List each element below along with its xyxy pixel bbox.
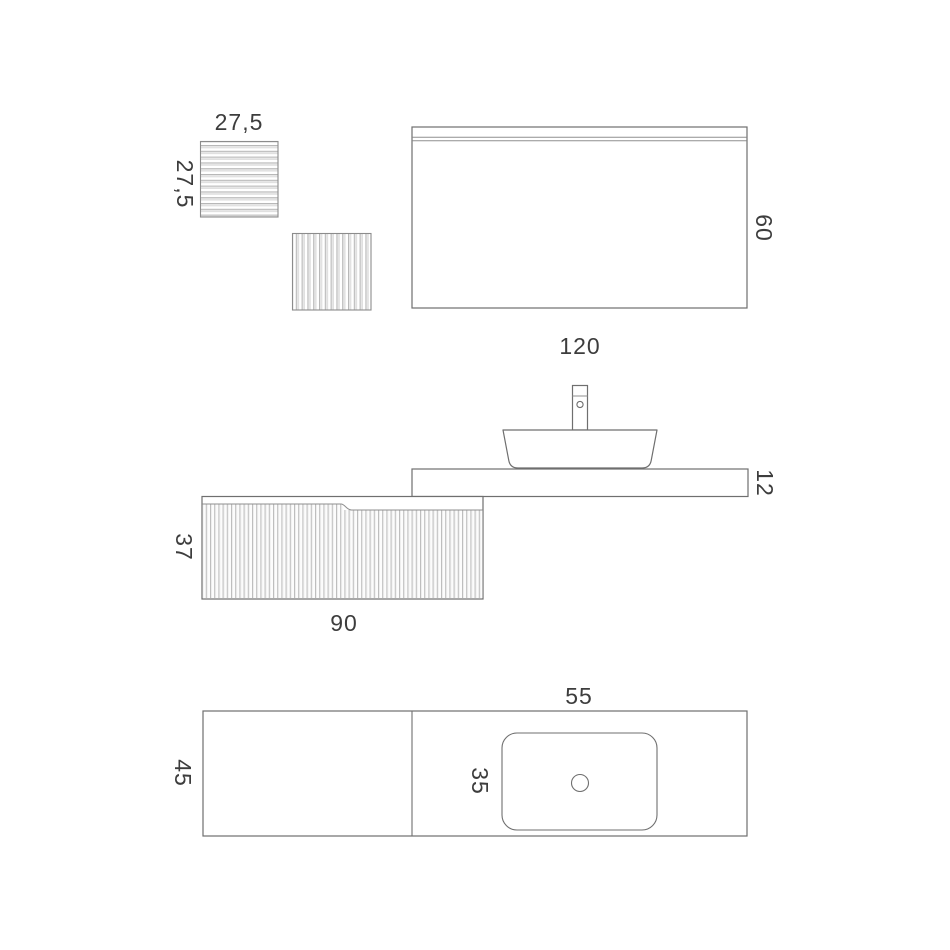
technical-drawing-page: 27,5 27,5 60 120 12 37 — [0, 0, 950, 950]
countertop-side — [412, 469, 748, 497]
dim-panel-width: 27,5 — [215, 109, 264, 135]
panel-sample-vertical-ribs — [293, 234, 372, 311]
cabinet-ribs-left — [203, 504, 343, 598]
panel-sample-horizontal-ribs — [201, 142, 279, 218]
cabinet-ribs-right — [343, 510, 483, 598]
view-countertop-plan: 55 35 45 — [170, 683, 747, 836]
dim-countertop-depth: 45 — [170, 759, 196, 787]
dim-mirror-height: 60 — [751, 214, 777, 242]
dim-countertop-thickness: 12 — [752, 469, 778, 497]
view-mirror-front: 60 120 — [412, 127, 777, 359]
view-vanity-elevation: 12 37 90 — [171, 386, 778, 637]
bathroom-furniture-dimension-drawing: 27,5 27,5 60 120 12 37 — [0, 0, 950, 950]
dim-cabinet-width: 90 — [330, 610, 358, 636]
dim-basin-depth: 35 — [467, 767, 493, 795]
dim-panel-height: 27,5 — [172, 160, 198, 209]
basin-side-profile — [503, 430, 657, 468]
basin-cutout-outline — [502, 733, 657, 830]
view-panel-samples: 27,5 27,5 — [172, 109, 371, 310]
mirror-outline — [412, 127, 747, 308]
dim-cabinet-height: 37 — [171, 533, 197, 561]
dim-mirror-width: 120 — [559, 333, 600, 359]
dim-basin-width: 55 — [565, 683, 593, 709]
